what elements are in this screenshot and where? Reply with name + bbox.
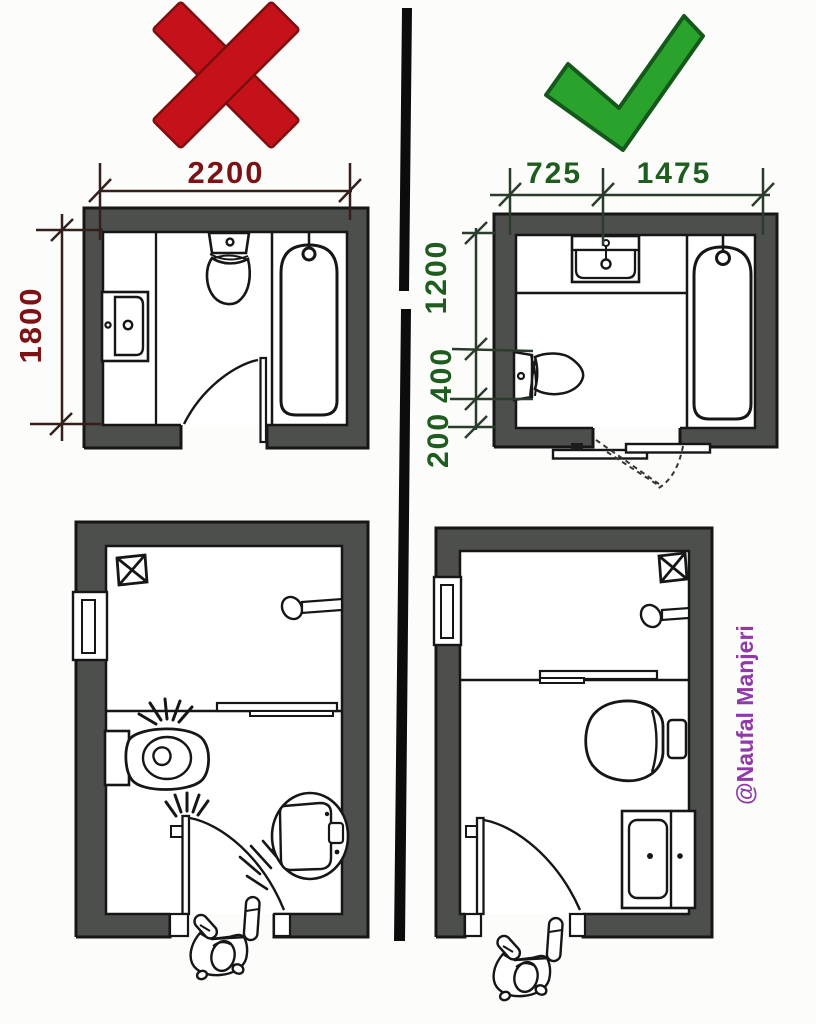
svg-text:2200: 2200 bbox=[188, 155, 265, 190]
svg-text:1800: 1800 bbox=[13, 287, 48, 364]
svg-text:400: 400 bbox=[425, 347, 458, 403]
svg-text:200: 200 bbox=[422, 412, 455, 468]
svg-text:@Naufal Manjeri: @Naufal Manjeri bbox=[732, 625, 758, 805]
svg-text:1200: 1200 bbox=[420, 240, 453, 315]
svg-text:725: 725 bbox=[526, 157, 582, 190]
svg-text:1475: 1475 bbox=[637, 157, 712, 190]
